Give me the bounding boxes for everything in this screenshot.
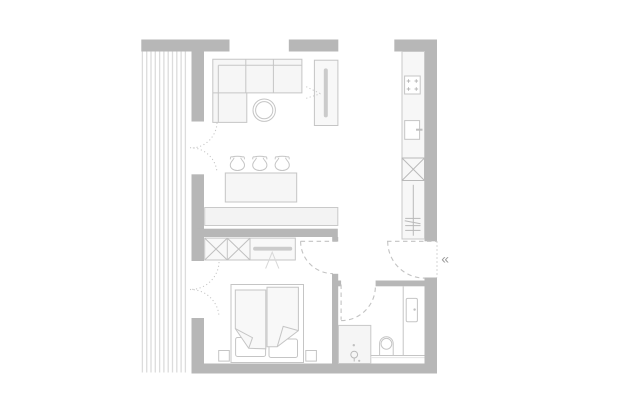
- svg-text:«: «: [441, 251, 449, 267]
